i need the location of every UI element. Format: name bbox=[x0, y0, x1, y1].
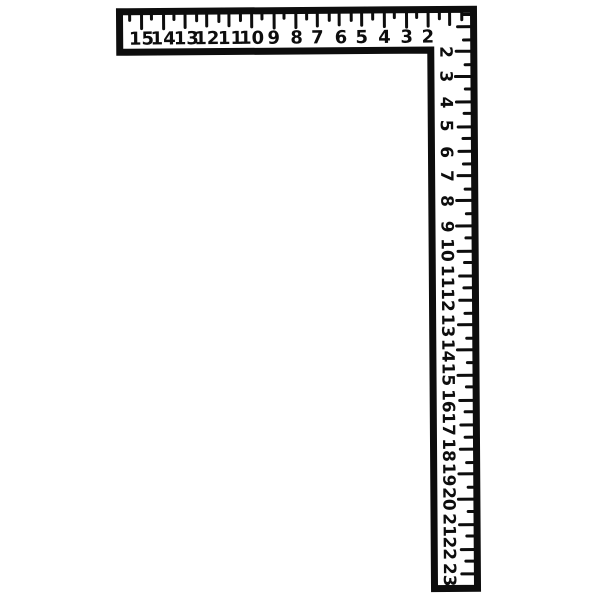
inch-number: 16 bbox=[438, 389, 458, 413]
inch-number: 7 bbox=[436, 170, 456, 182]
tongue-numbers: 234567891011121314151617181920212223 bbox=[435, 46, 459, 587]
inch-number: 6 bbox=[335, 27, 348, 48]
inch-number: 12 bbox=[194, 28, 219, 49]
inch-number: 2 bbox=[422, 27, 435, 48]
inch-number: 13 bbox=[437, 314, 457, 338]
inch-number: 15 bbox=[437, 362, 457, 386]
inch-number: 3 bbox=[435, 70, 455, 82]
inch-number: 11 bbox=[437, 265, 457, 289]
inch-number: 9 bbox=[267, 28, 280, 49]
inch-number: 20 bbox=[438, 487, 458, 511]
inch-number: 10 bbox=[239, 28, 264, 49]
inch-number: 14 bbox=[437, 339, 457, 363]
inch-number: 5 bbox=[355, 27, 368, 48]
inch-number: 23 bbox=[439, 563, 459, 587]
inch-number: 18 bbox=[438, 438, 458, 462]
inch-number: 8 bbox=[290, 27, 303, 48]
framing-square-figure: 15141312111098765432 2345678910111213141… bbox=[0, 0, 600, 600]
inch-number: 5 bbox=[436, 120, 456, 132]
inch-number: 9 bbox=[436, 221, 456, 233]
inch-number: 6 bbox=[436, 146, 456, 158]
inch-number: 4 bbox=[436, 96, 456, 108]
inch-number: 19 bbox=[438, 463, 458, 487]
inch-number: 21 bbox=[438, 513, 458, 537]
square-outline bbox=[119, 9, 477, 590]
inch-number: 2 bbox=[435, 46, 455, 58]
inch-number: 7 bbox=[311, 27, 324, 48]
inch-number: 12 bbox=[437, 288, 457, 312]
inch-number: 22 bbox=[439, 536, 459, 560]
inch-number: 4 bbox=[378, 27, 391, 48]
inch-number: 8 bbox=[436, 195, 456, 207]
framing-square-drawing: 15141312111098765432 2345678910111213141… bbox=[0, 0, 600, 600]
inch-number: 14 bbox=[151, 28, 176, 49]
inch-number: 10 bbox=[437, 238, 457, 262]
inch-number: 17 bbox=[438, 412, 458, 436]
inch-number: 3 bbox=[400, 27, 413, 48]
